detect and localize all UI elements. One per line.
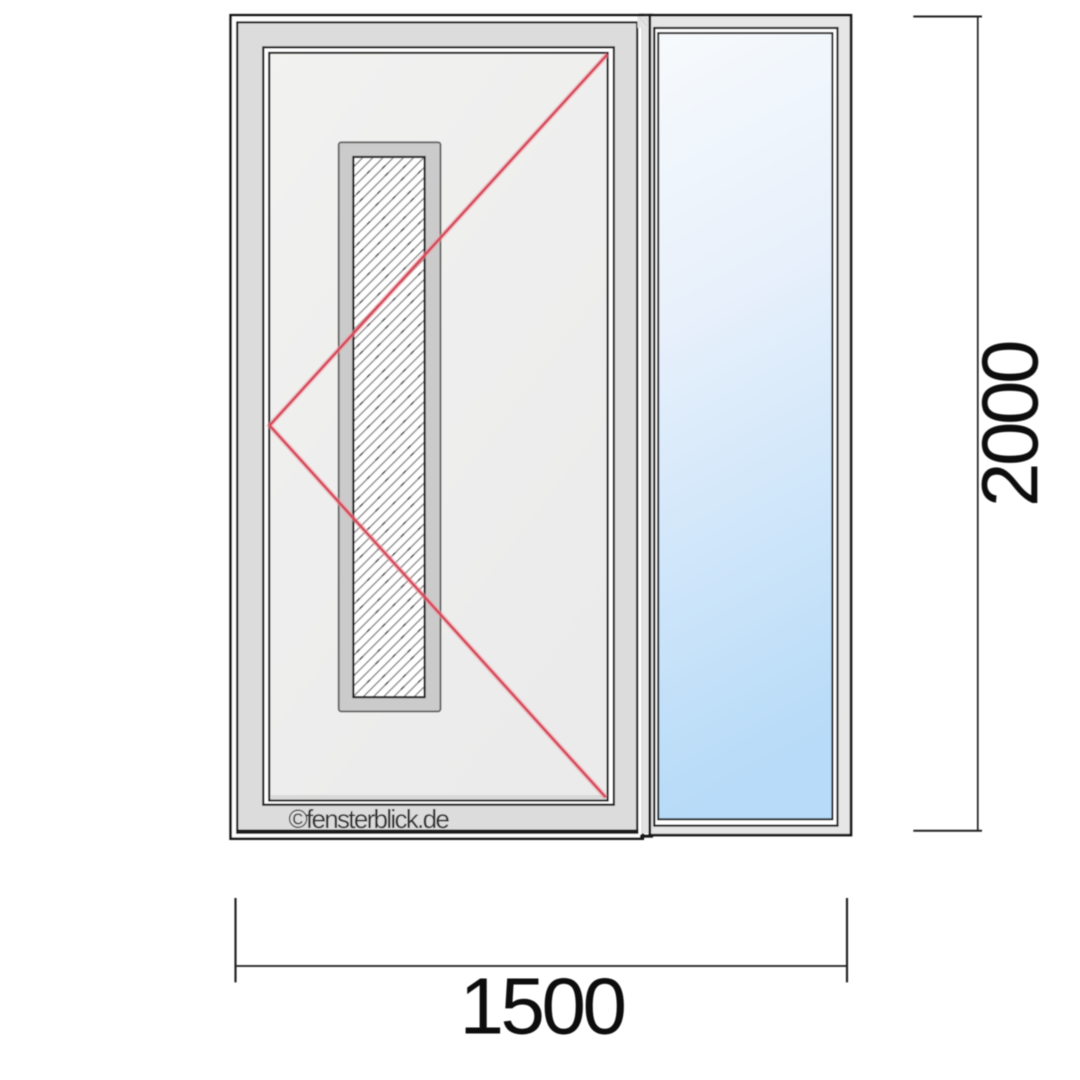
svg-text:1500: 1500	[460, 962, 625, 1051]
svg-text:©fensterblick.de: ©fensterblick.de	[289, 804, 450, 834]
svg-text:2000: 2000	[965, 342, 1054, 507]
